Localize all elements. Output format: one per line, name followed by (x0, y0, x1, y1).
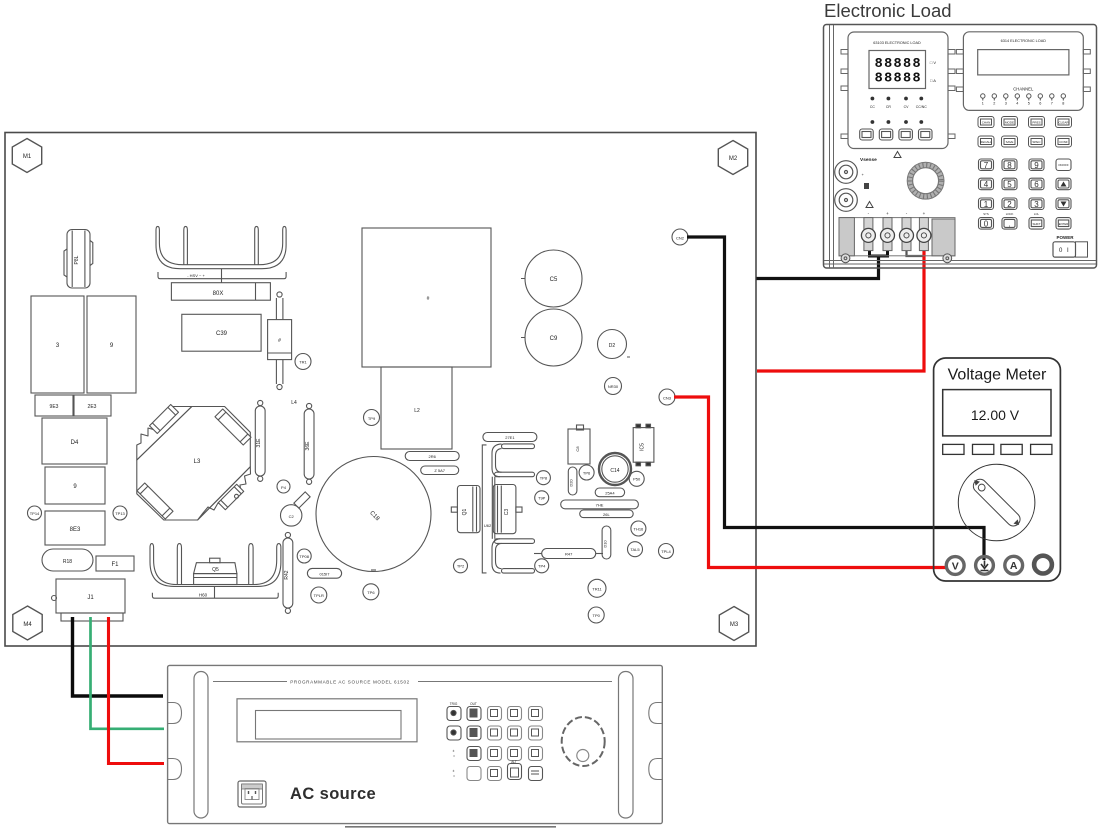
svg-text:4: 4 (984, 180, 989, 189)
svg-text:NR30: NR30 (608, 384, 619, 389)
svg-text:M2: M2 (729, 156, 738, 162)
svg-text:Z 5A7: Z 5A7 (434, 468, 445, 473)
svg-text:SYS: SYS (983, 212, 989, 216)
svg-text:TRIG: TRIG (450, 702, 458, 706)
svg-text:Vsense: Vsense (860, 157, 877, 163)
svg-text:6: 6 (1039, 102, 1041, 106)
svg-text:C5: C5 (550, 277, 558, 283)
svg-text:P8L: P8L (74, 255, 80, 264)
svg-text:27E1: 27E1 (505, 435, 515, 440)
svg-text:- HSV ~ +: - HSV ~ + (187, 273, 205, 278)
svg-text:D4: D4 (71, 440, 79, 446)
svg-text:L4: L4 (291, 400, 297, 406)
svg-text:7HE: 7HE (596, 503, 604, 508)
svg-text:7: 7 (984, 161, 989, 170)
svg-text:+: + (886, 211, 889, 216)
svg-text:88888: 88888 (875, 57, 921, 72)
svg-text:C8: C8 (575, 446, 580, 452)
svg-text:M3: M3 (730, 622, 739, 628)
svg-text:PROGRAMMABLE AC SOURCE MODE: PROGRAMMABLE AC SOURCE MODEL 61502 (290, 680, 410, 685)
svg-text:ENTER: ENTER (1059, 222, 1068, 226)
svg-text:2: 2 (1007, 200, 1012, 209)
svg-text:±: ± (453, 749, 455, 753)
svg-text:AC source: AC source (290, 785, 376, 803)
svg-text:7: 7 (1051, 102, 1053, 106)
svg-text:LOCK: LOCK (1006, 212, 1014, 216)
svg-text:TAL5: TAL5 (630, 547, 640, 552)
svg-text:POWER: POWER (1056, 235, 1074, 240)
svg-text:TP9: TP9 (368, 416, 376, 421)
svg-text:80X: 80X (213, 291, 224, 297)
svg-text:C39: C39 (216, 331, 228, 337)
svg-text:#: # (427, 296, 430, 302)
svg-text:2R6: 2R6 (429, 454, 437, 459)
svg-text:C9: C9 (550, 336, 558, 342)
svg-text:CN2: CN2 (676, 236, 685, 241)
svg-text:12.00 V: 12.00 V (971, 407, 1020, 423)
svg-text:1: 1 (984, 200, 989, 209)
svg-text:M4: M4 (23, 622, 32, 628)
svg-text:+: + (923, 211, 926, 216)
svg-text:2: 2 (993, 102, 995, 106)
svg-text:TP2: TP2 (457, 564, 465, 569)
svg-text:OUT: OUT (470, 702, 477, 706)
svg-text:L3: L3 (194, 459, 201, 465)
svg-text:31E: 31E (256, 438, 262, 448)
svg-text:TH16: TH16 (634, 527, 645, 532)
svg-text:TP8: TP8 (540, 476, 548, 481)
svg-text:8: 8 (1007, 161, 1012, 170)
svg-text:26L: 26L (603, 512, 610, 517)
svg-text:CR: CR (886, 105, 892, 109)
svg-text:CHAN: CHAN (982, 121, 991, 125)
svg-text:#: # (278, 338, 281, 344)
svg-text:TR11: TR11 (592, 587, 602, 592)
svg-text:TP6: TP6 (367, 590, 375, 595)
svg-text:TPL4: TPL4 (661, 549, 671, 554)
svg-text:9: 9 (1034, 161, 1039, 170)
svg-text:63103 ELECTRONIC LOAD: 63103 ELECTRONIC LOAD (873, 41, 921, 45)
svg-text:C3: C3 (504, 509, 510, 516)
svg-text:8: 8 (1062, 102, 1064, 106)
svg-text:P4: P4 (281, 485, 287, 490)
svg-text:5: 5 (1028, 102, 1030, 106)
svg-text:PRES: PRES (1032, 121, 1040, 125)
svg-text:1: 1 (982, 102, 984, 106)
svg-text:SHIFT: SHIFT (1032, 222, 1040, 226)
svg-text:±: ± (453, 769, 455, 773)
svg-text:ALT: ALT (511, 760, 517, 764)
svg-text:RECALL: RECALL (980, 140, 992, 144)
svg-text:C2: C2 (289, 514, 295, 519)
svg-text:□ A: □ A (930, 78, 936, 83)
svg-text:CC/NC: CC/NC (916, 105, 928, 109)
svg-text:Q5: Q5 (212, 567, 219, 573)
svg-text:3: 3 (1005, 102, 1007, 106)
svg-text:3: 3 (1034, 200, 1039, 209)
svg-text:=: = (453, 774, 455, 778)
svg-text:MODE: MODE (1005, 121, 1014, 125)
svg-text:SPEC: SPEC (1032, 140, 1041, 144)
svg-text:SAVE: SAVE (1006, 140, 1014, 144)
svg-text:C14: C14 (610, 468, 619, 474)
svg-text:5: 5 (1007, 180, 1012, 189)
svg-text:D20: D20 (569, 479, 574, 487)
svg-text:TP0: TP0 (593, 613, 601, 618)
svg-text:R42: R42 (284, 570, 290, 579)
svg-text:TP6: TP6 (583, 471, 591, 476)
svg-text:TR1: TR1 (299, 360, 307, 365)
svg-text:TP4: TP4 (538, 564, 546, 569)
svg-text:Electronic Load: Electronic Load (824, 0, 952, 21)
svg-text:4: 4 (1016, 102, 1018, 106)
svg-text:8E3: 8E3 (70, 527, 81, 533)
svg-text:V: V (952, 560, 959, 572)
svg-text:015I7: 015I7 (319, 572, 330, 577)
svg-text:A: A (1010, 560, 1018, 572)
svg-text:P50: P50 (633, 477, 641, 482)
svg-text:88888: 88888 (875, 72, 921, 87)
svg-text:M1: M1 (23, 154, 32, 160)
svg-text:.: . (1008, 220, 1010, 229)
svg-text:F1: F1 (111, 562, 119, 568)
svg-text:IC5: IC5 (640, 443, 646, 451)
svg-text:R18: R18 (63, 559, 72, 565)
svg-text:25A4: 25A4 (605, 491, 615, 496)
svg-text:J1: J1 (87, 595, 94, 601)
svg-text:Voltage Meter: Voltage Meter (948, 367, 1047, 384)
svg-text:R47: R47 (565, 552, 573, 557)
svg-text:ON/OFF: ON/OFF (1058, 163, 1069, 167)
svg-text:CV: CV (904, 105, 910, 109)
svg-text:TP13: TP13 (115, 511, 125, 516)
svg-text:CONF: CONF (1059, 140, 1068, 144)
svg-text:0: 0 (984, 220, 989, 229)
svg-text:=: = (453, 754, 455, 758)
svg-text:CLEAR: CLEAR (1058, 121, 1069, 125)
svg-text:CHANNEL: CHANNEL (1013, 87, 1034, 92)
svg-text:□ V: □ V (930, 60, 937, 65)
svg-text:TP08: TP08 (299, 554, 309, 559)
svg-text:U62: U62 (484, 523, 492, 528)
svg-text:TP14: TP14 (30, 511, 40, 516)
svg-text:Q1: Q1 (462, 508, 468, 515)
svg-text:6314 ELECTRONIC LOAD: 6314 ELECTRONIC LOAD (1001, 39, 1047, 43)
svg-text:CC: CC (870, 105, 876, 109)
svg-text:TPLR: TPLR (314, 593, 324, 598)
svg-text:9E3: 9E3 (50, 404, 59, 410)
svg-text:D2: D2 (609, 343, 616, 349)
svg-text:T9P: T9P (538, 496, 546, 501)
svg-text:H60: H60 (199, 593, 208, 598)
svg-text:LCL: LCL (1034, 212, 1040, 216)
svg-text:6: 6 (1034, 180, 1039, 189)
svg-text:L2: L2 (414, 408, 420, 414)
svg-text:2E3: 2E3 (88, 404, 97, 410)
svg-text:CN3: CN3 (663, 396, 672, 401)
svg-text:36E: 36E (305, 441, 311, 451)
svg-text:D10: D10 (602, 540, 607, 548)
